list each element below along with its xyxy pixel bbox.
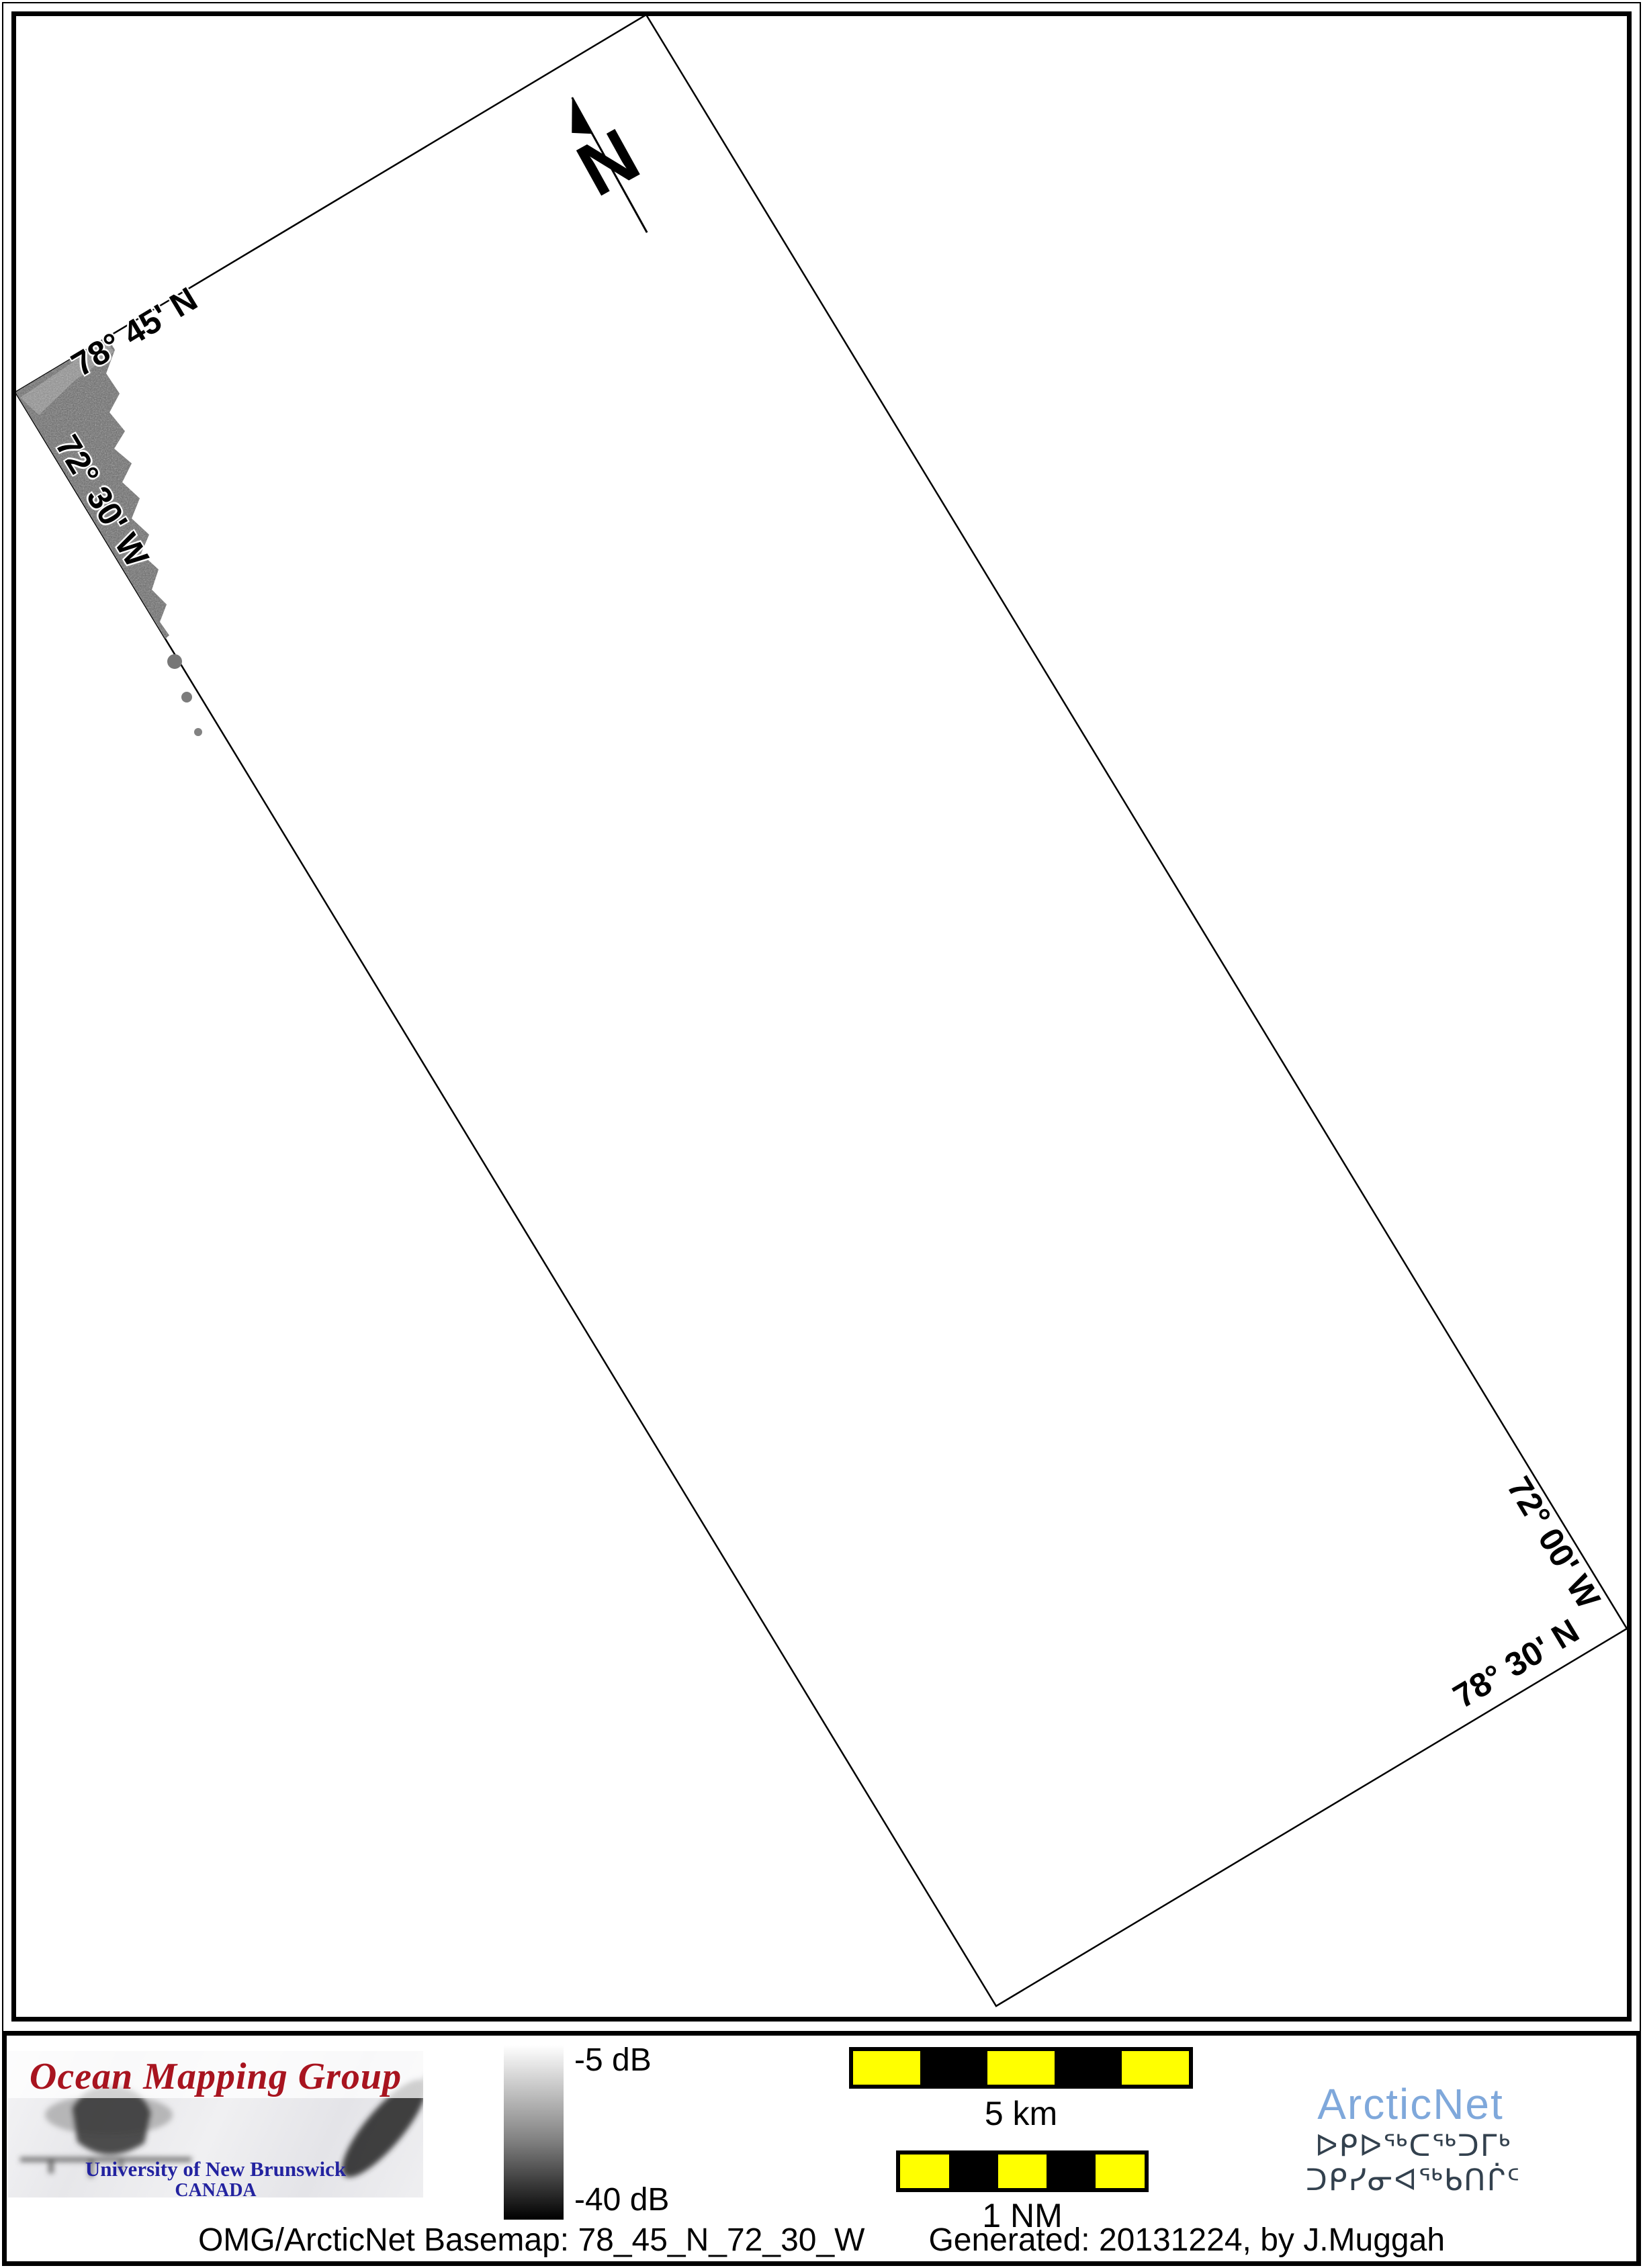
basemap-sheet: N 78° 45' N 72° 30' W 72° 00' W 78° 30' … bbox=[0, 0, 1643, 2268]
omg-logo: Ocean Mapping Group University of New Br… bbox=[8, 2051, 423, 2197]
scalebar-1nm bbox=[896, 2150, 1149, 2192]
scalebar-segment bbox=[1122, 2051, 1189, 2085]
footer-line: OMG/ArcticNet Basemap: 78_45_N_72_30_WGe… bbox=[11, 2222, 1632, 2259]
north-arrow: N bbox=[548, 84, 670, 245]
colorbar-min-label: -40 dB bbox=[574, 2181, 669, 2218]
arcticnet-inuktitut: ᐅᑭᐅᖅᑕᖅᑐᒥᒃ ᑐᑭᓯᓂᐊᖅᑲᑎᒌᑦ bbox=[1227, 2129, 1600, 2197]
scalebar-segment bbox=[987, 2051, 1055, 2085]
backscatter-colorbar bbox=[504, 2045, 564, 2220]
omg-title: Ocean Mapping Group bbox=[8, 2055, 423, 2098]
scalebar-5km-label: 5 km bbox=[849, 2094, 1193, 2133]
omg-country: CANADA bbox=[8, 2180, 423, 2197]
scalebar-segment bbox=[853, 2051, 920, 2085]
scalebar-segment bbox=[1096, 2154, 1145, 2188]
map-canvas: N bbox=[0, 0, 1643, 2268]
scalebar-segment bbox=[920, 2051, 987, 2085]
scalebar-segment bbox=[900, 2154, 949, 2188]
omg-university: University of New Brunswick bbox=[8, 2157, 423, 2181]
survey-area-outline bbox=[15, 15, 1627, 2006]
scalebar-segment bbox=[1055, 2051, 1122, 2085]
scalebar-segment bbox=[1047, 2154, 1096, 2188]
arcticnet-logo: ArcticNet bbox=[1263, 2079, 1558, 2129]
colorbar-max-label: -5 dB bbox=[574, 2042, 652, 2079]
scalebar-segment bbox=[949, 2154, 998, 2188]
footer-generated: Generated: 20131224, by J.Muggah bbox=[928, 2222, 1445, 2258]
scalebar-segment bbox=[998, 2154, 1047, 2188]
scalebar-5km bbox=[849, 2047, 1193, 2089]
footer-basemap-id: OMG/ArcticNet Basemap: 78_45_N_72_30_W bbox=[198, 2222, 864, 2258]
